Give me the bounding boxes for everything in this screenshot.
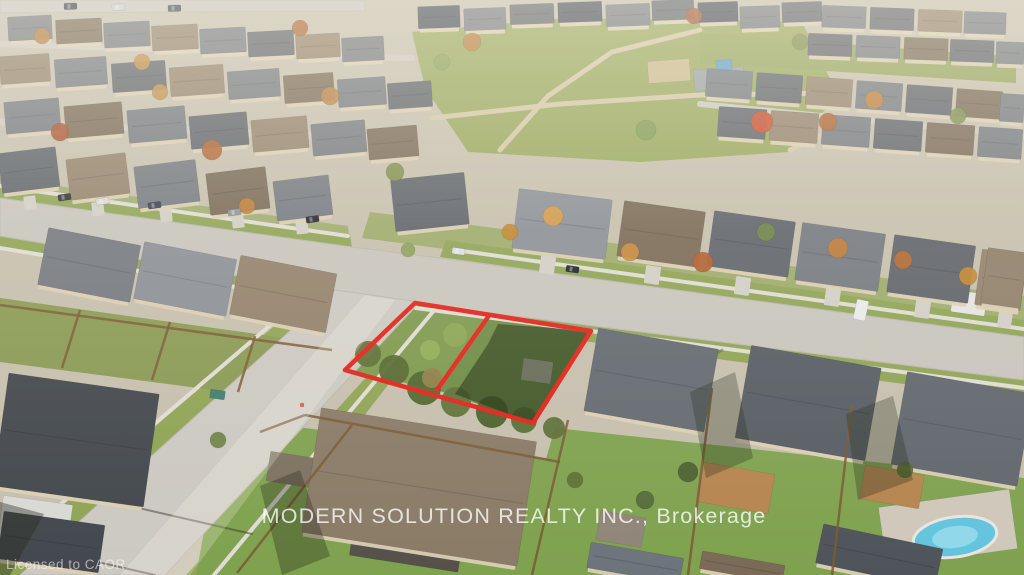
aerial-listing-photo: MODERN SOLUTION REALTY INC., Brokerage L…	[0, 0, 1024, 575]
brokerage-watermark: MODERN SOLUTION REALTY INC., Brokerage	[262, 504, 767, 528]
aerial-photo-canvas: MODERN SOLUTION REALTY INC., Brokerage L…	[0, 0, 1024, 575]
license-watermark: Licensed to CAOR	[6, 557, 126, 572]
sun-haze-overlay	[0, 0, 1024, 575]
